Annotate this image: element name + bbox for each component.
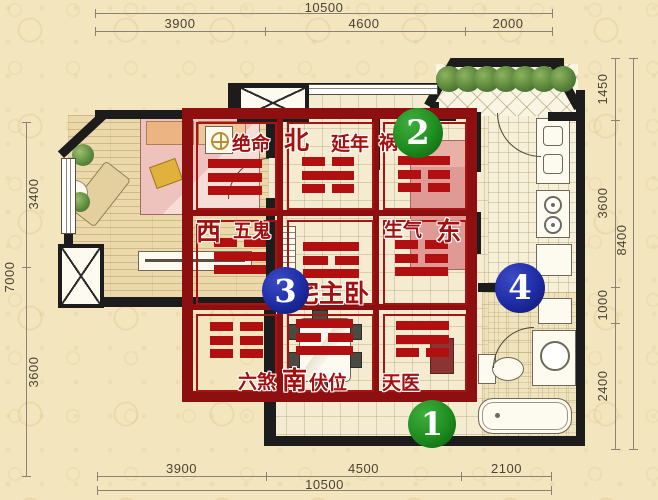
dim-top-seg2: 4600 xyxy=(265,16,463,31)
dim-left-seg2: 3600 xyxy=(27,340,41,404)
direction-label-north: 北 xyxy=(284,121,309,157)
window-left-icon xyxy=(61,158,76,234)
star-label-tianyi: 天医 xyxy=(382,368,420,395)
dim-right-seg2: 3600 xyxy=(596,171,610,235)
burner-icon xyxy=(544,196,562,214)
direction-label-south: 南 xyxy=(282,361,307,397)
trigram-kan-icon xyxy=(302,157,354,193)
wash-basin-icon xyxy=(540,341,570,371)
trigram-xun-icon xyxy=(396,321,449,357)
trigram-dui-icon xyxy=(214,238,266,274)
bagua-grid-hline1 xyxy=(182,210,477,216)
dim-right-seg1: 1450 xyxy=(596,57,610,121)
bathtub-icon xyxy=(478,398,572,434)
direction-label-east: 东 xyxy=(436,212,461,248)
badge-2: 2 xyxy=(393,108,443,158)
star-label-jueming: 绝命 xyxy=(232,129,270,156)
badge-3: 3 xyxy=(262,267,309,314)
floor-plan-canvas: 10500 3900 4600 2000 3900 4500 2100 1050… xyxy=(0,0,658,500)
star-label-yannian: 延年 xyxy=(331,129,369,156)
dim-left-seg1: 3400 xyxy=(27,162,41,226)
stove-icon xyxy=(536,190,570,238)
kitchen-appliance-icon xyxy=(536,244,572,276)
dim-left-total: 7000 xyxy=(3,245,17,309)
dim-bottom-total-line xyxy=(97,490,552,491)
dim-top-seg3: 2000 xyxy=(463,16,553,31)
balcony-plants-icon xyxy=(443,64,577,94)
sink-basin-icon xyxy=(543,126,563,146)
trigram-gen-icon xyxy=(398,156,450,192)
elevator-shaft-icon xyxy=(58,244,104,308)
dim-right-seg4: 2400 xyxy=(596,354,610,418)
dim-top-segments-line xyxy=(95,31,553,32)
wall-right-exterior xyxy=(576,90,585,446)
trigram-li-center-icon xyxy=(303,242,359,278)
burner-icon xyxy=(544,216,562,234)
bagua-grid-vline1 xyxy=(277,108,283,402)
kitchen-appliance-icon xyxy=(538,298,572,324)
dim-bottom-seg3: 2100 xyxy=(461,461,552,476)
star-label-fuwei: 伏位 xyxy=(309,368,347,395)
trigram-qian-icon xyxy=(208,159,262,195)
kitchen-sink-counter xyxy=(536,118,570,184)
dim-top-total-line xyxy=(95,13,553,14)
trigram-li-south-icon xyxy=(296,319,353,355)
badge-1: 1 xyxy=(408,400,456,448)
badge-4: 4 xyxy=(495,263,545,313)
dim-top-seg1: 3900 xyxy=(95,16,265,31)
sink-basin-icon xyxy=(543,154,563,174)
dim-bottom-seg1: 3900 xyxy=(97,461,266,476)
trigram-kun-icon xyxy=(210,322,263,358)
star-label-liusha: 六煞 xyxy=(238,367,276,394)
drain-icon xyxy=(495,413,500,418)
window-top-icon xyxy=(300,84,438,95)
dim-right-total: 8400 xyxy=(615,208,629,272)
dim-right-total-line xyxy=(633,58,634,450)
dim-right-seg3: 1000 xyxy=(596,273,610,337)
star-label-wugui: 五鬼 xyxy=(233,216,271,243)
vanity-counter xyxy=(532,330,576,386)
dim-bottom-seg2: 4500 xyxy=(266,461,461,476)
star-label-shengqi: 生气 xyxy=(384,215,422,242)
direction-label-west: 西 xyxy=(196,212,221,248)
